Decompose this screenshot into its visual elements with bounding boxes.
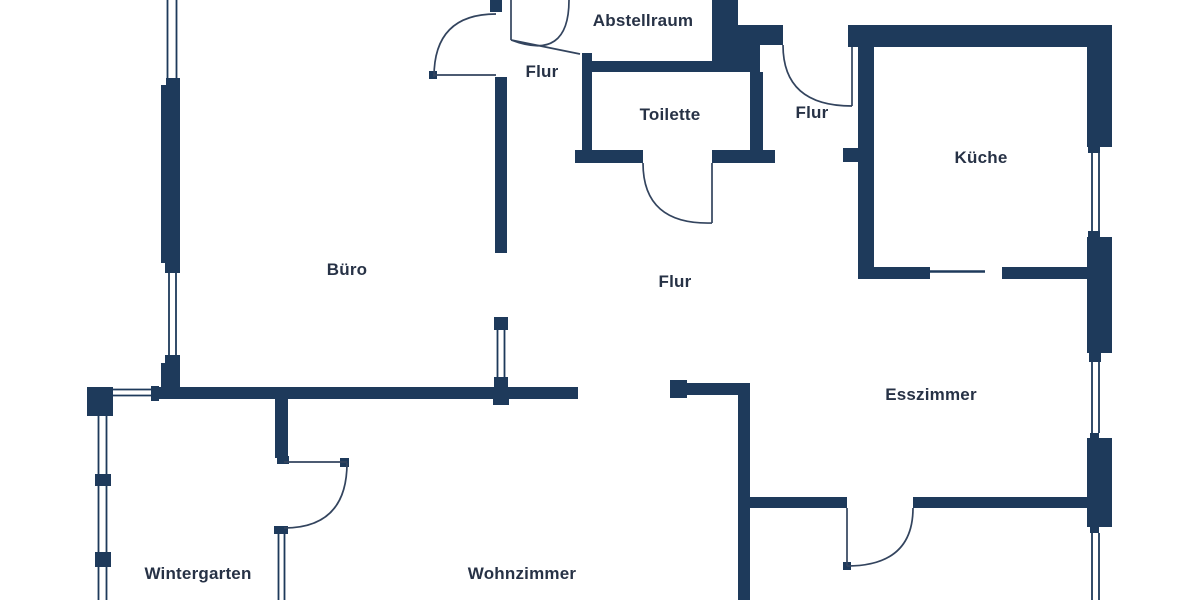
window-cap bbox=[151, 386, 159, 401]
wall-left-upper bbox=[161, 85, 180, 263]
wall-esszimmer-south-left bbox=[750, 497, 847, 508]
room-label-toilette: Toilette bbox=[640, 105, 701, 124]
room-label-kueche: Küche bbox=[955, 148, 1008, 167]
window-cap bbox=[165, 263, 180, 273]
door-toilette bbox=[643, 163, 712, 223]
window-cap bbox=[1090, 433, 1099, 438]
wall-kueche-west-foot bbox=[843, 148, 873, 162]
wall-kueche-north bbox=[848, 25, 1112, 47]
wall-buero-south bbox=[158, 387, 578, 399]
room-label-flur-top: Flur bbox=[526, 62, 559, 81]
window-cap bbox=[494, 377, 508, 388]
wall-wohnzimmer-east bbox=[738, 383, 750, 600]
window-esszimmer-east-upper bbox=[1092, 362, 1099, 433]
floorplan: Abstellraum Flur Toilette Flur Küche Bür… bbox=[0, 0, 1200, 600]
wall-kueche-south-right bbox=[1002, 267, 1090, 279]
door-flur-top bbox=[433, 14, 496, 77]
window-buero-west bbox=[169, 273, 176, 355]
room-labels: Abstellraum Flur Toilette Flur Küche Bür… bbox=[144, 11, 1007, 583]
floorplan-svg: Abstellraum Flur Toilette Flur Küche Bür… bbox=[0, 0, 1200, 600]
wall-toilette-south-right bbox=[712, 150, 775, 163]
door-flur-kueche bbox=[783, 45, 852, 106]
wall-kueche-south-left bbox=[858, 267, 930, 279]
room-label-wohnzimmer: Wohnzimmer bbox=[468, 564, 577, 583]
wall-segments bbox=[87, 0, 1112, 600]
room-label-esszimmer: Esszimmer bbox=[885, 385, 977, 404]
wall-toilette-north bbox=[582, 61, 712, 72]
door-wintergarten bbox=[284, 462, 347, 528]
wall-right-seg3 bbox=[1087, 438, 1112, 527]
room-label-flur-right: Flur bbox=[796, 103, 829, 122]
door-esszimmer bbox=[847, 508, 913, 566]
window-cap bbox=[1089, 353, 1101, 362]
wall-toilette-east bbox=[750, 72, 763, 152]
window-cap bbox=[494, 317, 508, 330]
window-esszimmer-east-lower bbox=[1092, 533, 1099, 600]
window-cap bbox=[165, 355, 180, 363]
wall-wintergarten-corner bbox=[87, 387, 113, 416]
window-cap bbox=[1090, 527, 1099, 533]
wall-left-lower bbox=[161, 363, 180, 390]
door-abstellraum bbox=[511, 0, 580, 54]
wall-top-stub bbox=[490, 0, 502, 12]
window-buero-northwest bbox=[168, 0, 177, 78]
wall-buero-east bbox=[495, 77, 507, 253]
window-cap bbox=[1088, 231, 1100, 237]
wall-wintergarten-stub bbox=[275, 398, 288, 458]
room-label-abstellraum: Abstellraum bbox=[593, 11, 693, 30]
window-mullion bbox=[95, 552, 111, 567]
wall-right-seg2 bbox=[1087, 237, 1112, 353]
window-cap bbox=[166, 78, 180, 85]
window-mullion bbox=[95, 474, 111, 486]
room-label-flur-center: Flur bbox=[659, 272, 692, 291]
wall-abstellraum-east bbox=[712, 0, 738, 32]
window-wintergarten-east bbox=[279, 530, 285, 600]
window-wintergarten-west bbox=[99, 416, 107, 600]
door-swing-symbols bbox=[284, 0, 913, 566]
room-label-buero: Büro bbox=[327, 260, 367, 279]
window-buero-east-glazing bbox=[498, 330, 505, 377]
wall-flur-north-stub bbox=[738, 25, 783, 45]
window-cap bbox=[493, 398, 509, 405]
room-label-wintergarten: Wintergarten bbox=[144, 564, 251, 583]
window-symbols bbox=[99, 0, 1100, 600]
wall-esszimmer-south-right bbox=[913, 497, 1090, 508]
window-kueche-east bbox=[1092, 152, 1099, 231]
wall-right-seg1 bbox=[1087, 47, 1112, 147]
wall-toilette-south-left bbox=[575, 150, 643, 163]
